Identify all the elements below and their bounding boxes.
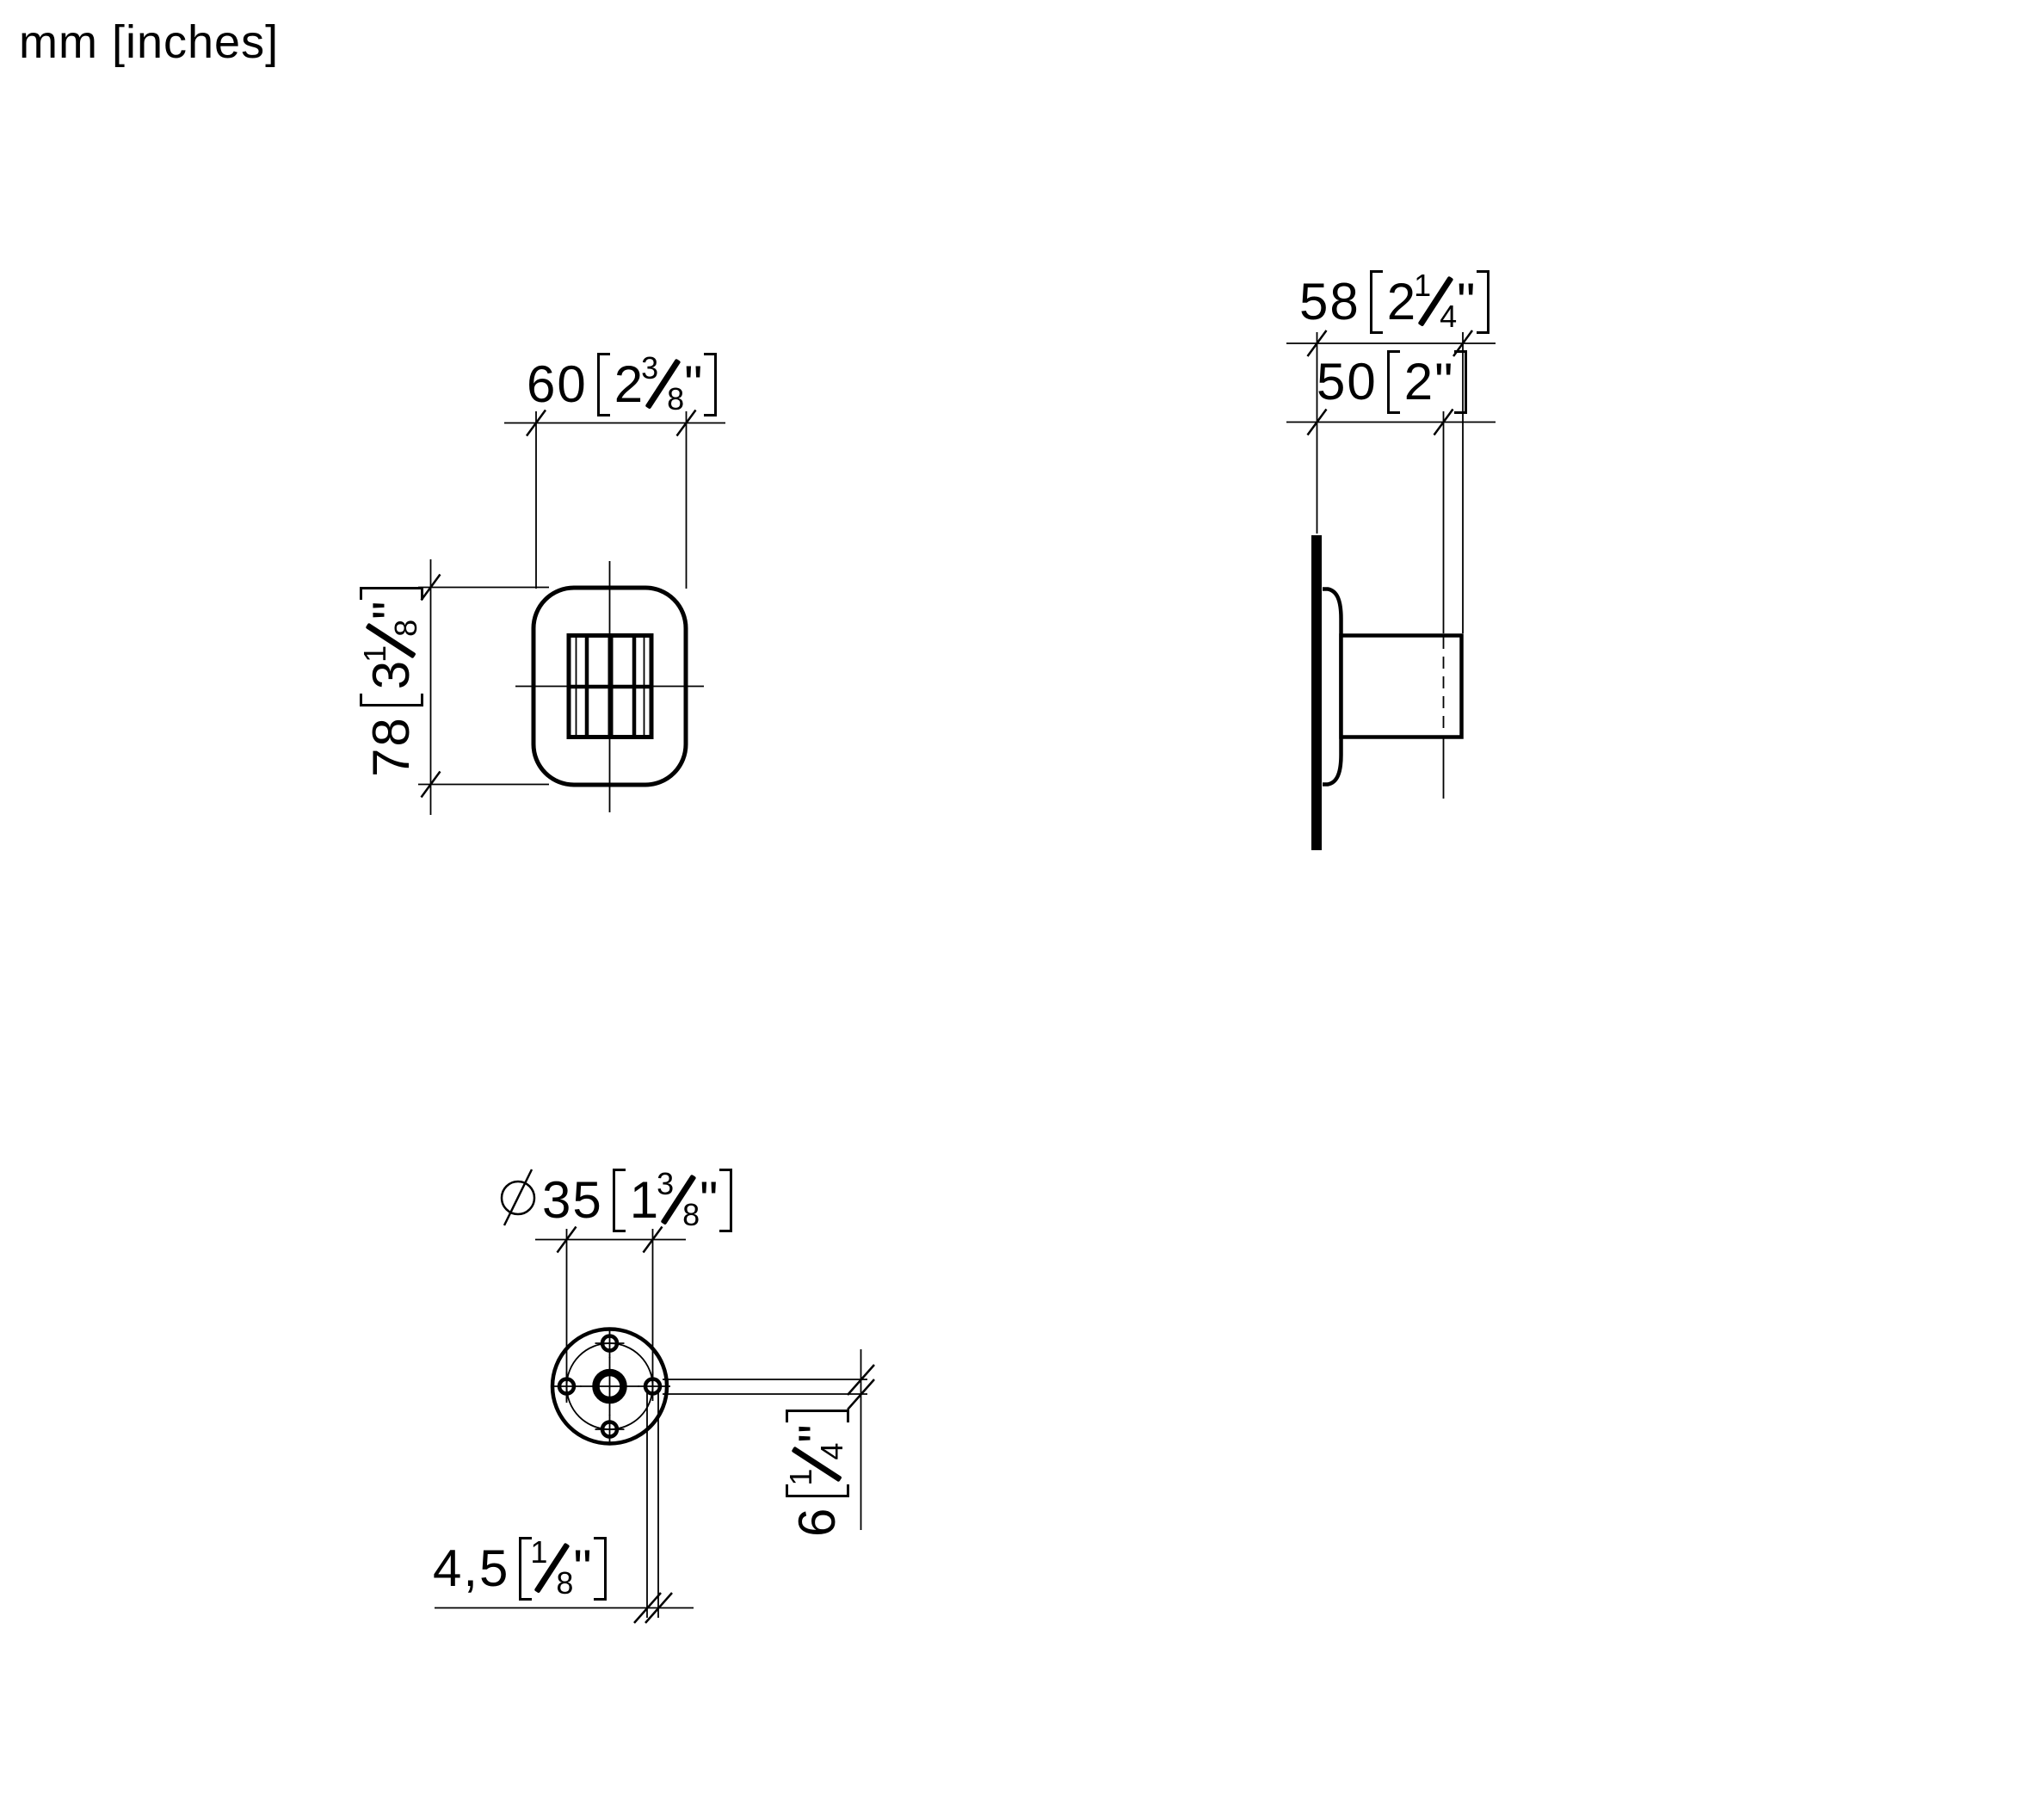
inch-mark: ": [366, 602, 417, 620]
screw-hole: [595, 1415, 625, 1444]
inch-mark: ": [573, 1543, 591, 1595]
bracket-close: [1454, 350, 1467, 414]
inch-fraction: 1 4: [786, 1445, 849, 1484]
dim-label-bottom-hole: 6 1 4 ": [786, 1411, 849, 1537]
bracket-close: [594, 1537, 607, 1601]
bracket-open: [360, 694, 423, 706]
technical-drawing-page: mm [inches]: [0, 0, 2023, 1820]
bracket-open: [613, 1169, 626, 1232]
inch-mark: ": [700, 1175, 718, 1226]
mm-value: 6: [792, 1507, 843, 1537]
bracket-open: [786, 1484, 849, 1497]
dim-label-bottom-flange: 35 1 3 8 ": [542, 1169, 732, 1232]
bracket-close: [704, 353, 717, 416]
escutcheon-profile: [1323, 589, 1341, 785]
inch-whole: 2: [1404, 356, 1433, 408]
wall-plate: [1311, 535, 1322, 850]
inch-fraction: 1 8: [360, 621, 423, 661]
inch-mark: ": [1434, 356, 1452, 408]
inch-mark: ": [792, 1424, 843, 1442]
inch-fraction: 3 8: [658, 1169, 698, 1232]
mm-value: 50: [1317, 356, 1378, 408]
inch-whole: 2: [614, 359, 643, 410]
dim-label-front-height: 78 3 1 8 ": [360, 595, 423, 777]
dim-label-bottom-screw: 4,5 1 8 ": [433, 1537, 607, 1601]
bracket-open: [1370, 270, 1383, 334]
diameter-symbol-icon: [502, 1169, 534, 1225]
bracket-open: [1387, 350, 1400, 414]
mm-value: 60: [527, 359, 588, 410]
inch-whole: 2: [1387, 276, 1415, 328]
bracket-close: [719, 1169, 732, 1232]
inch-fraction: 1 8: [532, 1537, 571, 1601]
screw-hole: [552, 1372, 582, 1401]
dim-label-side-body: 50 2 ": [1317, 350, 1467, 414]
dim-label-front-width: 60 2 3 8 ": [527, 353, 717, 416]
inch-fraction: 3 8: [643, 353, 682, 416]
mm-value: 58: [1299, 276, 1360, 328]
drawing-canvas: [0, 0, 2023, 1820]
inch-fraction: 1 4: [1415, 270, 1455, 334]
inch-mark: ": [1457, 276, 1475, 328]
mm-value: 78: [366, 716, 417, 777]
inch-whole: 3: [366, 661, 417, 689]
inch-mark: ": [684, 359, 702, 410]
dim-label-side-depth: 58 2 1 4 ": [1299, 270, 1489, 334]
bracket-close: [1477, 270, 1489, 334]
bracket-close: [360, 587, 423, 600]
bracket-close: [786, 1410, 849, 1422]
front-view-drawing: [418, 410, 725, 816]
inch-whole: 1: [630, 1175, 658, 1226]
mm-value: 4,5: [433, 1543, 509, 1595]
screw-hole: [595, 1329, 625, 1358]
bracket-open: [597, 353, 610, 416]
mm-value: 35: [542, 1175, 603, 1226]
